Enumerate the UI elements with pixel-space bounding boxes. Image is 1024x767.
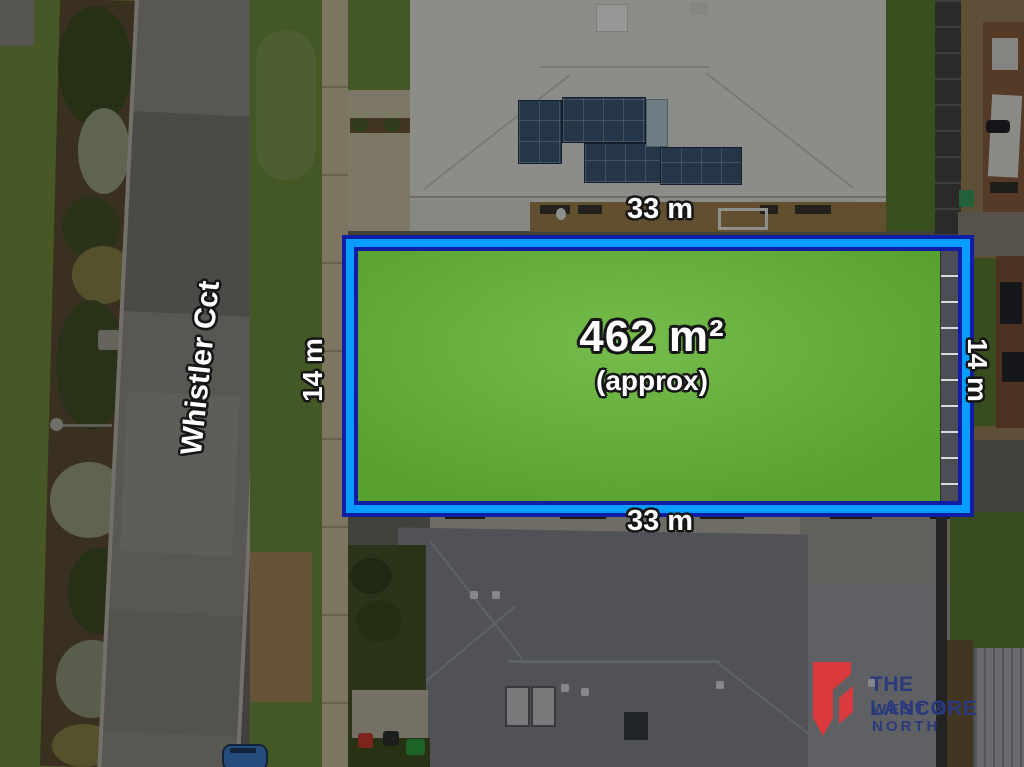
brand-logo: THE LANCORE WEST & NORTH [800,656,1012,748]
lot-width-bottom-label: 33 m [560,506,760,536]
brand-region: WEST & NORTH [872,701,1012,735]
lot-depth-left-label: 14 m [298,320,328,420]
lot-area-qualifier: (approx) [452,366,852,395]
lot-depth-right-label: 14 m [962,320,992,420]
brand-logo-icon [806,660,862,740]
aerial-lot-advert: 33 m 33 m 14 m 14 m 462 m² (approx) Whis… [0,0,1024,767]
lot-area-label: 462 m² [452,314,852,360]
lot-side-fence [940,251,958,501]
lot-width-top-label: 33 m [560,194,760,224]
